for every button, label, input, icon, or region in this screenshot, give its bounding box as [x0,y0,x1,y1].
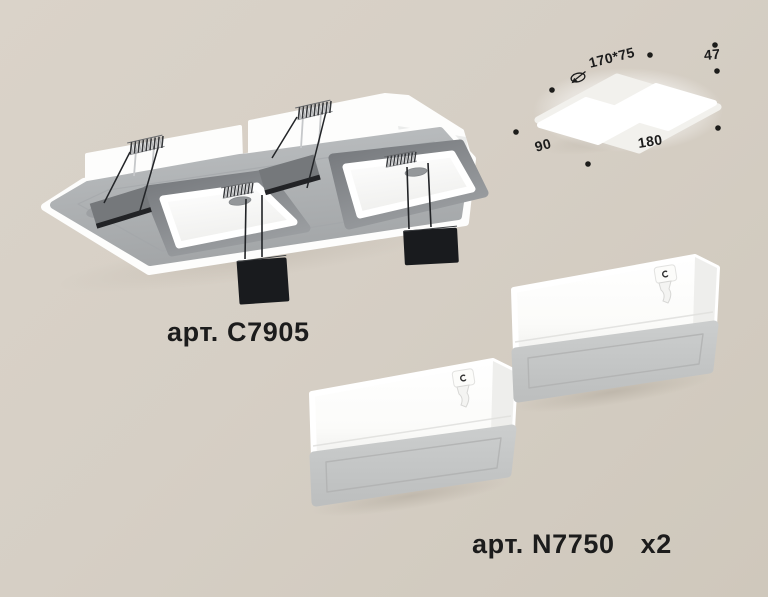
product-montage: арт. C7905 арт. N7750 x2 170*75 47 90 18… [0,0,768,597]
product-illustrations [0,0,768,597]
main-fixture-render [45,95,484,307]
lamp-module-right [511,257,717,420]
article-label-frame: арт. C7905 [167,317,310,348]
quantity-label: x2 [641,529,672,560]
article-label-lamp: арт. N7750 [472,529,615,560]
dimension-height-label: 47 [703,46,721,63]
lamp-module-left [309,361,515,524]
article-label-lamp-row: арт. N7750 x2 [472,529,672,560]
